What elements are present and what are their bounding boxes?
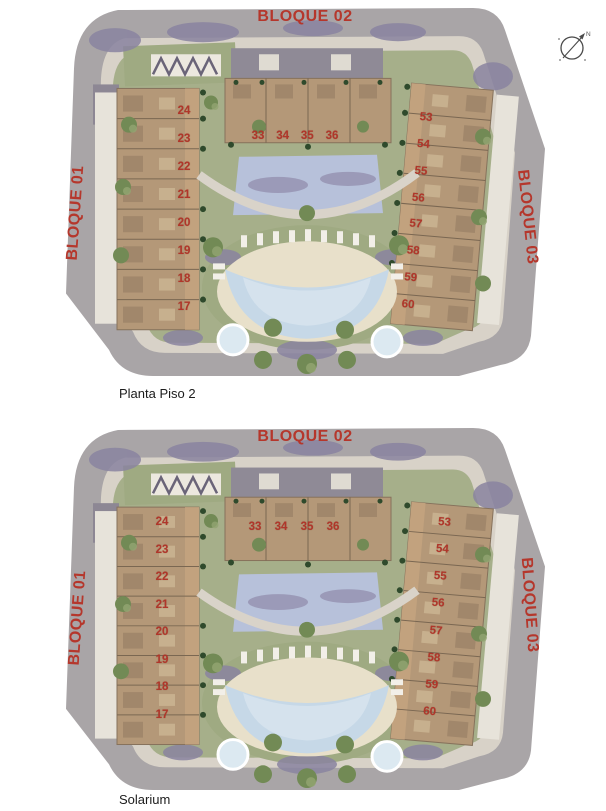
unit-number: 18 (173, 273, 195, 286)
unit-number: 21 (173, 189, 195, 202)
unit-number: 20 (151, 626, 173, 639)
unit-number: 24 (173, 105, 195, 118)
unit-number: 58 (402, 244, 425, 259)
unit-number: 33 (247, 130, 269, 143)
unit-number: 55 (429, 570, 452, 585)
bloque-01-unit-numbers: 24 23 22 21 20 19 18 17 (173, 105, 193, 314)
unit-number: 34 (270, 521, 292, 534)
unit-number: 21 (151, 599, 173, 612)
unit-number: 56 (407, 191, 430, 206)
unit-number: 36 (321, 130, 343, 143)
site-plan-illustration (63, 6, 547, 378)
bloque-02-unit-numbers: 33 34 35 36 (244, 521, 344, 535)
unit-number: 20 (173, 217, 195, 230)
unit-number: 35 (296, 130, 318, 143)
bloque-02-label: BLOQUE 02 (63, 427, 547, 447)
unit-number: 53 (433, 516, 456, 531)
unit-number: 22 (151, 571, 173, 584)
plan2-caption: Solarium (119, 792, 170, 807)
unit-number: 60 (396, 298, 419, 313)
compass-icon: N (552, 27, 594, 69)
bloque-01-unit-numbers: 24 23 22 21 20 19 18 17 (151, 516, 171, 722)
bloque-02-label: BLOQUE 02 (63, 7, 547, 27)
unit-number: 34 (272, 130, 294, 143)
unit-number: 54 (431, 543, 454, 558)
unit-number: 59 (420, 678, 443, 693)
unit-number: 57 (404, 217, 427, 232)
unit-number: 56 (427, 597, 450, 612)
site-plan-illustration (63, 426, 547, 792)
site-plan-planta-piso-2: BLOQUE 02 BLOQUE 01 BLOQUE 03 24 23 22 2… (63, 6, 547, 378)
unit-number: 60 (418, 705, 441, 720)
unit-number: 35 (296, 521, 318, 534)
unit-number: 19 (173, 245, 195, 258)
compass-north-label: N (586, 31, 591, 38)
plan1-caption: Planta Piso 2 (119, 386, 196, 401)
unit-number: 58 (422, 651, 445, 666)
unit-number: 23 (173, 133, 195, 146)
unit-number: 17 (151, 709, 173, 722)
unit-number: 53 (414, 111, 437, 126)
unit-number: 54 (412, 137, 435, 152)
unit-number: 59 (399, 271, 422, 286)
unit-number: 19 (151, 654, 173, 667)
bloque-02-unit-numbers: 33 34 35 36 (247, 130, 343, 144)
unit-number: 22 (173, 161, 195, 174)
unit-number: 18 (151, 681, 173, 694)
unit-number: 23 (151, 544, 173, 557)
unit-number: 57 (424, 624, 447, 639)
unit-number: 55 (409, 164, 432, 179)
unit-number: 33 (244, 521, 266, 534)
unit-number: 24 (151, 516, 173, 529)
unit-number: 36 (322, 521, 344, 534)
site-plan-solarium: BLOQUE 02 BLOQUE 01 BLOQUE 03 24 23 22 2… (63, 426, 547, 792)
unit-number: 17 (173, 301, 195, 314)
